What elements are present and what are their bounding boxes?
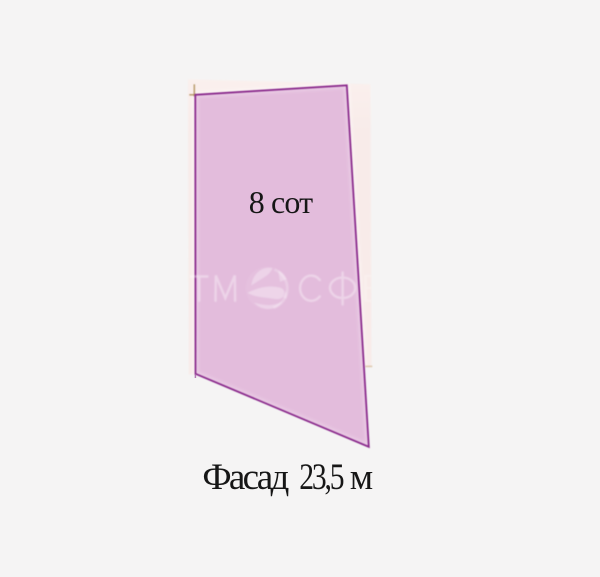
svg-text:8 сот: 8 сот xyxy=(249,184,313,220)
svg-text:м: м xyxy=(350,457,373,498)
svg-text:23,5: 23,5 xyxy=(299,457,344,498)
svg-text:Фасад: Фасад xyxy=(202,457,288,498)
